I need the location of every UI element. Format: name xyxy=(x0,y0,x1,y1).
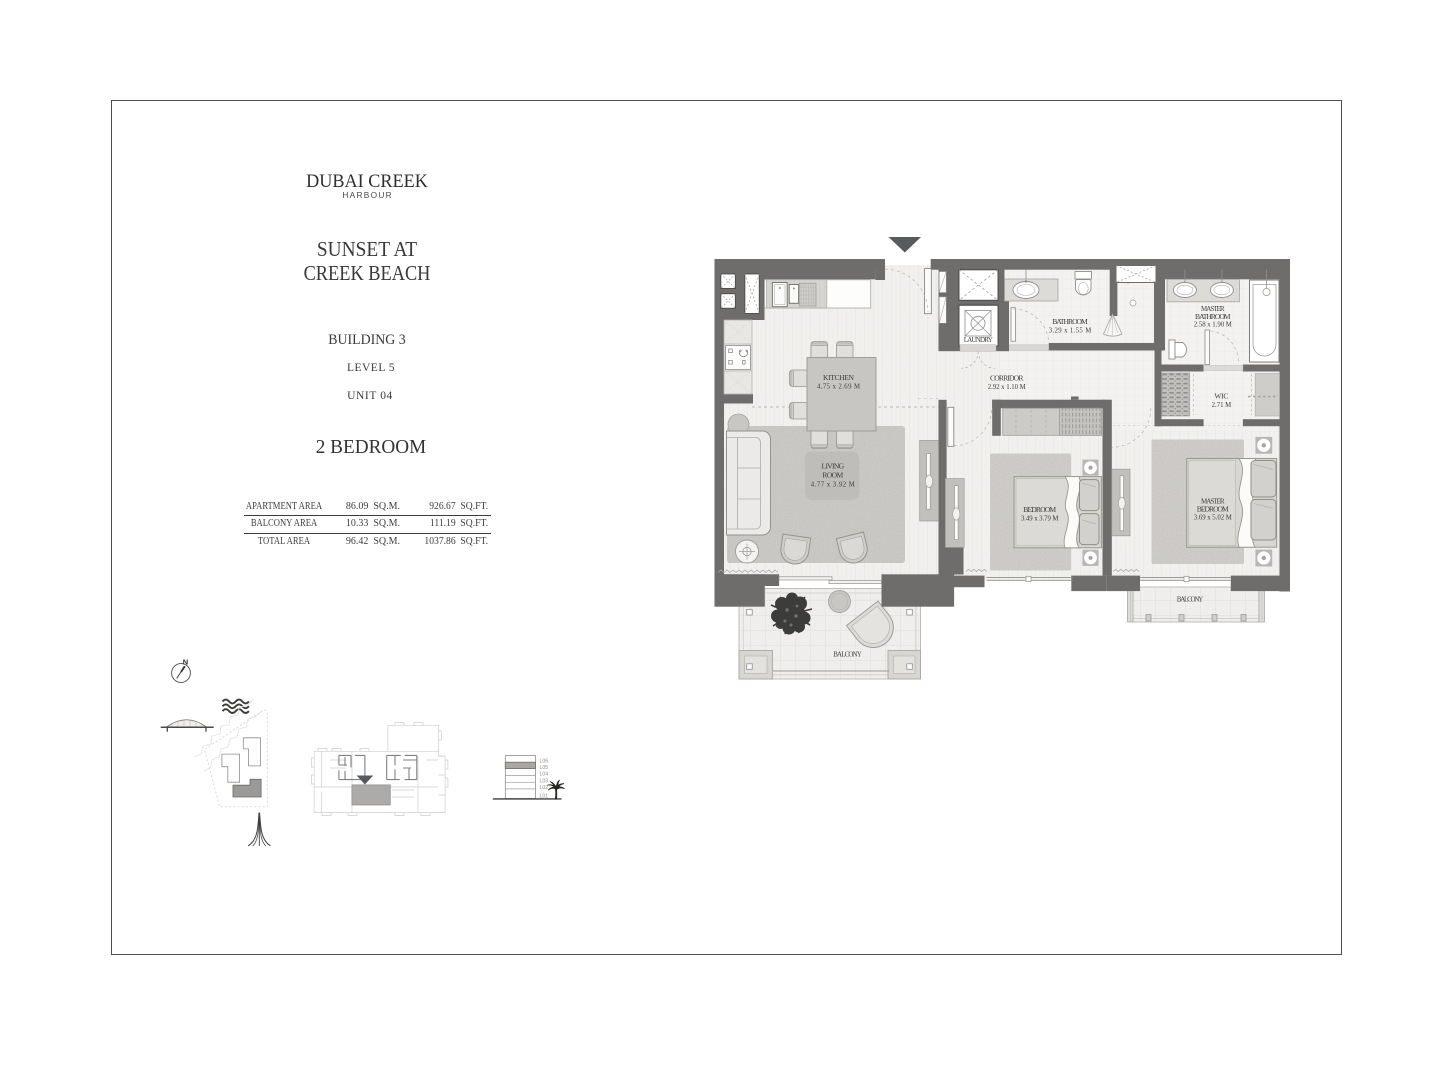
svg-text:2.71 M: 2.71 M xyxy=(1212,402,1232,409)
svg-text:WIC: WIC xyxy=(1214,392,1228,401)
svg-text:L05: L05 xyxy=(540,765,549,771)
svg-text:3.69 x 5.02 M: 3.69 x 5.02 M xyxy=(1194,515,1232,522)
svg-text:BATHROOM: BATHROOM xyxy=(1052,317,1088,326)
svg-text:L03: L03 xyxy=(540,778,549,784)
svg-text:4.75 x 2.69 M: 4.75 x 2.69 M xyxy=(817,384,860,391)
svg-text:3.49 x 3.79 M: 3.49 x 3.79 M xyxy=(1021,516,1059,523)
svg-text:BATHROOM: BATHROOM xyxy=(1195,312,1231,321)
svg-text:3.29 x 1.55 M: 3.29 x 1.55 M xyxy=(1049,328,1092,335)
svg-text:CORRIDOR: CORRIDOR xyxy=(990,374,1024,383)
svg-text:2.58 x 1.90 M: 2.58 x 1.90 M xyxy=(1194,322,1232,329)
svg-text:BEDROOM: BEDROOM xyxy=(1023,505,1056,514)
svg-text:4.77 x 3.92 M: 4.77 x 3.92 M xyxy=(811,482,855,489)
svg-text:LAUNDRY: LAUNDRY xyxy=(964,336,993,344)
svg-text:ROOM: ROOM xyxy=(822,471,843,480)
svg-text:N: N xyxy=(183,658,188,667)
svg-text:BEDROOM: BEDROOM xyxy=(1197,505,1229,514)
svg-text:BALCONY: BALCONY xyxy=(1177,596,1204,604)
svg-text:2.92 x 1.10 M: 2.92 x 1.10 M xyxy=(988,384,1026,391)
svg-text:KITCHEN: KITCHEN xyxy=(823,373,855,382)
svg-text:L02: L02 xyxy=(540,785,549,791)
svg-text:L04: L04 xyxy=(540,772,549,778)
svg-text:BALCONY: BALCONY xyxy=(833,651,862,659)
svg-text:LIVING: LIVING xyxy=(822,462,845,471)
svg-text:L06: L06 xyxy=(540,759,549,765)
